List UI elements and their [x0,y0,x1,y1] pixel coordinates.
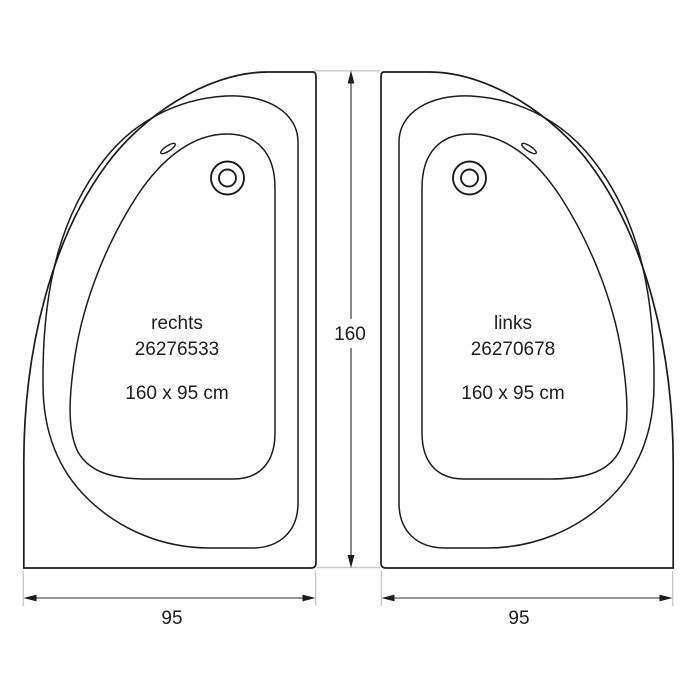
arrow-up-icon [348,71,355,84]
drawing-canvas: 160 95 95 rechts 26276533 160 x 95 cm li… [0,0,696,696]
arrow-left-icon [24,595,37,602]
width-dimension-left-label: 95 [161,608,182,629]
tub-links-size-label: 160 x 95 cm [461,383,565,404]
arrow-right-icon [660,595,673,602]
arrow-left-icon [382,595,395,602]
tub-rechts-orientation-label: rechts [151,313,203,334]
width-dimension-right: 95 [382,595,673,629]
height-dimension-label: 160 [334,324,366,345]
width-dimension-left: 95 [24,595,316,629]
arrow-down-icon [348,555,355,568]
arrow-right-icon [303,595,316,602]
tub-links-labels: links 26270678 160 x 95 cm [461,313,565,404]
width-dimension-right-label: 95 [508,608,529,629]
tub-rechts-size-label: 160 x 95 cm [125,383,229,404]
height-dimension: 160 [334,71,366,569]
bathtub-technical-drawing: 160 95 95 rechts 26276533 160 x 95 cm li… [0,0,696,696]
tub-rechts-article-number: 26276533 [135,339,220,360]
tub-rechts-labels: rechts 26276533 160 x 95 cm [125,313,229,404]
tub-links-article-number: 26270678 [471,339,556,360]
tub-links-orientation-label: links [494,313,532,334]
